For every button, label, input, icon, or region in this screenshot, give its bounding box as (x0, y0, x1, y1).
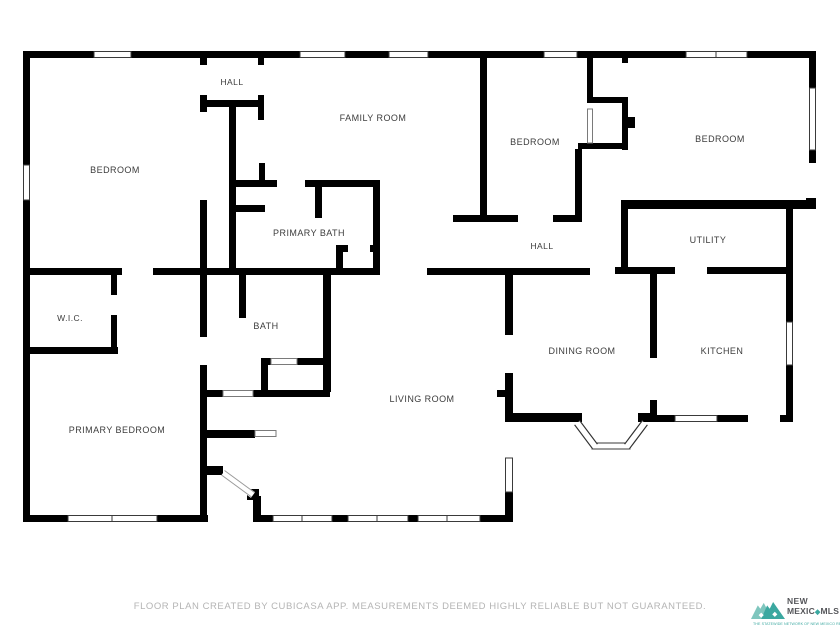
mountains-icon (751, 600, 785, 621)
room-label-utility: UTILITY (690, 235, 727, 245)
room-label-wic: W.I.C. (57, 313, 83, 323)
room-label-living-room: LIVING ROOM (390, 394, 455, 404)
doors (222, 109, 593, 497)
floor-plan-drawing (0, 0, 840, 630)
room-label-family-room: FAMILY ROOM (340, 113, 407, 123)
new-mexico-mls-logo: NEW MEXIC◆MLS THE STATEWIDE NETWORK OF N… (751, 597, 840, 629)
disclaimer-text: FLOOR PLAN CREATED BY CUBICASA APP. MEAS… (0, 601, 840, 612)
room-label-hall-top: HALL (220, 77, 243, 87)
logo-tagline: THE STATEWIDE NETWORK OF NEW MEXICO REAL… (753, 622, 840, 626)
logo-line2: MEXIC◆MLS (787, 607, 839, 616)
logo-line1: NEW (787, 597, 839, 606)
room-label-hall-middle: HALL (530, 241, 553, 251)
windows (24, 52, 816, 522)
logo-mexic-text: MEXIC (787, 606, 815, 616)
room-label-kitchen: KITCHEN (701, 346, 744, 356)
room-label-dining-room: DINING ROOM (549, 346, 616, 356)
walls (23, 51, 816, 522)
room-label-bedroom-left: BEDROOM (90, 165, 140, 175)
logo-mls-text: MLS (821, 606, 840, 616)
room-label-bedroom-middle: BEDROOM (510, 137, 560, 147)
room-label-primary-bedroom: PRIMARY BEDROOM (69, 425, 165, 435)
room-label-primary-bath: PRIMARY BATH (273, 228, 345, 238)
diagonal-door (222, 471, 255, 498)
room-label-bedroom-right: BEDROOM (695, 134, 745, 144)
room-label-bath: BATH (253, 321, 278, 331)
